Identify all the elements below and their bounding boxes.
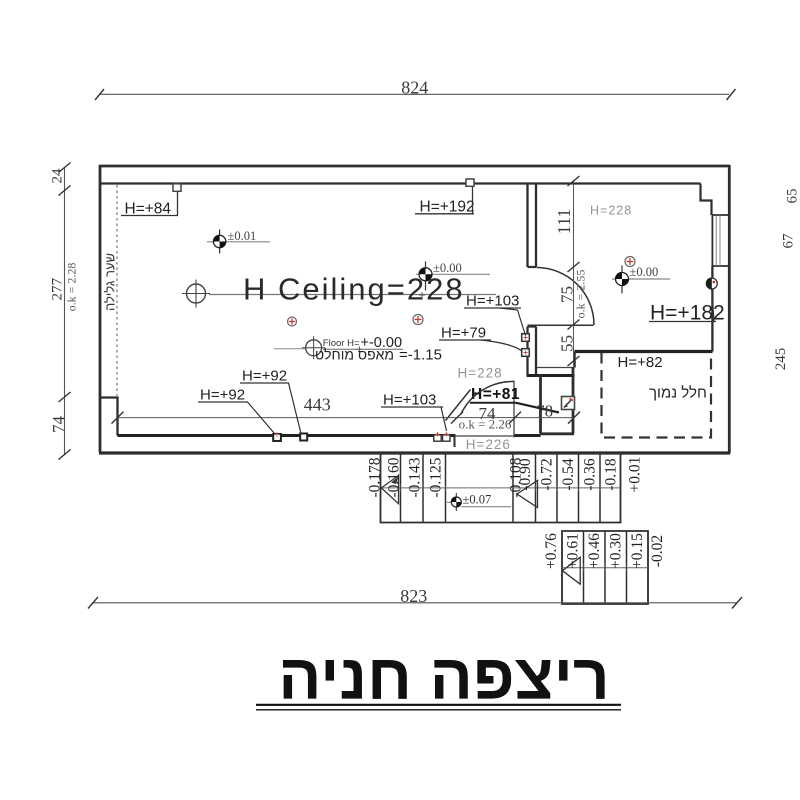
svg-text:H=+92: H=+92 <box>200 387 245 404</box>
svg-text:±0.07: ±0.07 <box>463 493 492 507</box>
svg-text:-0.18: -0.18 <box>603 458 620 491</box>
svg-text:+0.30: +0.30 <box>607 533 624 569</box>
svg-text:55: 55 <box>558 335 577 352</box>
svg-text:±0.00: ±0.00 <box>630 265 659 279</box>
svg-text:-0.54: -0.54 <box>560 458 577 491</box>
svg-text:+0.61: +0.61 <box>564 533 581 569</box>
svg-text:חלל נמוך: חלל נמוך <box>649 385 707 402</box>
svg-text:H=+92: H=+92 <box>242 368 287 385</box>
svg-text:o.k = 2.28: o.k = 2.28 <box>65 263 79 312</box>
svg-text:+0.01: +0.01 <box>627 457 644 493</box>
svg-text:H=228: H=228 <box>590 204 632 218</box>
svg-text:74: 74 <box>49 416 68 434</box>
svg-text:H=+81: H=+81 <box>471 386 520 403</box>
svg-text:=-1.15: =-1.15 <box>399 347 442 364</box>
svg-text:443: 443 <box>304 395 331 415</box>
svg-text:824: 824 <box>401 78 428 98</box>
svg-text:277: 277 <box>49 278 65 301</box>
svg-text:65: 65 <box>785 189 800 204</box>
svg-text:67: 67 <box>781 233 797 249</box>
svg-text:H=228: H=228 <box>458 366 503 381</box>
svg-text:-0.178: -0.178 <box>366 457 383 497</box>
svg-text:o.k = 2.55: o.k = 2.55 <box>573 270 587 319</box>
svg-text:H=+79: H=+79 <box>441 325 486 342</box>
svg-text:H=+103: H=+103 <box>466 293 519 310</box>
svg-text:-0.02: -0.02 <box>649 535 666 567</box>
svg-text:H=226: H=226 <box>466 437 511 452</box>
svg-text:±0.01: ±0.01 <box>228 229 257 243</box>
svg-text:o.k = 2.26: o.k = 2.26 <box>459 417 512 432</box>
svg-text:-0.36: -0.36 <box>582 458 599 491</box>
svg-text:שער גלילה: שער גלילה <box>103 253 118 311</box>
svg-text:מאפס מוחלט: מאפס מוחלט <box>315 347 394 363</box>
svg-text:-0.125: -0.125 <box>428 457 445 497</box>
svg-text:823: 823 <box>400 586 427 606</box>
svg-text:+0.46: +0.46 <box>586 533 603 569</box>
svg-text:+0.76: +0.76 <box>543 533 560 569</box>
svg-text:-0.160: -0.160 <box>386 457 403 497</box>
svg-text:ריצפה חניה: ריצפה חניה <box>278 641 610 713</box>
svg-text:H=+82: H=+82 <box>618 354 663 371</box>
svg-text:H=+103: H=+103 <box>383 392 436 409</box>
svg-text:245: 245 <box>773 348 789 371</box>
svg-text:24: 24 <box>50 168 66 184</box>
svg-text:-0.72: -0.72 <box>539 458 556 490</box>
svg-text:±0.00: ±0.00 <box>433 261 462 275</box>
svg-text:+0.15: +0.15 <box>629 533 646 569</box>
svg-text:H=+192: H=+192 <box>420 199 475 216</box>
svg-text:-0.143: -0.143 <box>407 457 424 497</box>
svg-text:111: 111 <box>554 209 574 235</box>
svg-text:-0.90: -0.90 <box>517 458 534 491</box>
